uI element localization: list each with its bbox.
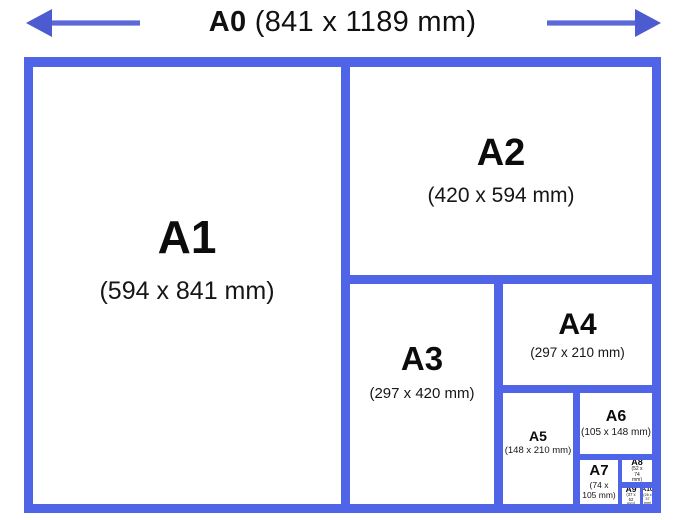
paper-a7: A7 (74 x 105 mm): [580, 460, 618, 504]
paper-a7-label: A7: [589, 463, 608, 479]
paper-a7-dimensions: (74 x 105 mm): [582, 481, 616, 501]
paper-sizes-diagram: A0 (841 x 1189 mm) A1 (594 x 841 mm) A2 …: [0, 0, 685, 520]
paper-a9: A9 (37 x 52 mm): [622, 488, 640, 504]
paper-a6-dimensions: (105 x 148 mm): [581, 427, 651, 438]
paper-a9-content: A9 (37 x 52 mm): [625, 488, 637, 504]
paper-a5-dimensions: (148 x 210 mm): [505, 445, 572, 456]
a0-dimensions: (841 x 1189 mm): [255, 6, 477, 38]
paper-a10: A10 (26 x 37 mm): [643, 488, 652, 504]
paper-a8: A8 (52 x 74 mm): [622, 460, 652, 482]
paper-a3-label: A3: [401, 342, 443, 377]
title-spacer: [246, 6, 254, 38]
paper-a4-dimensions: (297 x 210 mm): [530, 345, 625, 360]
paper-a6-label: A6: [606, 409, 626, 426]
paper-a5-content: A5 (148 x 210 mm): [505, 429, 572, 457]
paper-a10-content: A10 (26 x 37 mm): [643, 488, 652, 504]
paper-a9-dimensions: (37 x 52 mm): [625, 493, 637, 504]
paper-a1-content: A1 (594 x 841 mm): [99, 213, 274, 306]
paper-a4-content: A4 (297 x 210 mm): [530, 309, 625, 361]
paper-a2: A2 (420 x 594 mm): [350, 67, 652, 275]
paper-a1-dimensions: (594 x 841 mm): [99, 277, 274, 306]
a0-label: A0: [209, 6, 247, 38]
paper-a6: A6 (105 x 148 mm): [580, 393, 652, 454]
paper-a1: A1 (594 x 841 mm): [33, 67, 341, 504]
paper-a1-label: A1: [158, 213, 217, 261]
paper-a4: A4 (297 x 210 mm): [503, 284, 652, 385]
paper-a3: A3 (297 x 420 mm): [350, 284, 494, 504]
paper-a2-dimensions: (420 x 594 mm): [427, 184, 574, 208]
paper-a8-dimensions: (52 x 74 mm): [630, 467, 645, 482]
paper-a3-content: A3 (297 x 420 mm): [369, 342, 474, 403]
paper-a2-label: A2: [477, 134, 526, 174]
header: A0 (841 x 1189 mm): [0, 0, 685, 56]
paper-a4-label: A4: [558, 309, 596, 341]
paper-a7-content: A7 (74 x 105 mm): [582, 463, 616, 500]
paper-a5-label: A5: [529, 429, 547, 444]
paper-a3-dimensions: (297 x 420 mm): [369, 385, 474, 402]
paper-a5: A5 (148 x 210 mm): [503, 393, 573, 504]
paper-a10-dimensions: (26 x 37 mm): [643, 493, 652, 504]
paper-a8-content: A8 (52 x 74 mm): [630, 460, 645, 482]
right-arrow-icon: [547, 8, 661, 38]
paper-a2-content: A2 (420 x 594 mm): [427, 134, 574, 208]
paper-a6-content: A6 (105 x 148 mm): [581, 409, 651, 438]
a0-sheet-outline: A1 (594 x 841 mm) A2 (420 x 594 mm) A3 (…: [24, 57, 661, 513]
